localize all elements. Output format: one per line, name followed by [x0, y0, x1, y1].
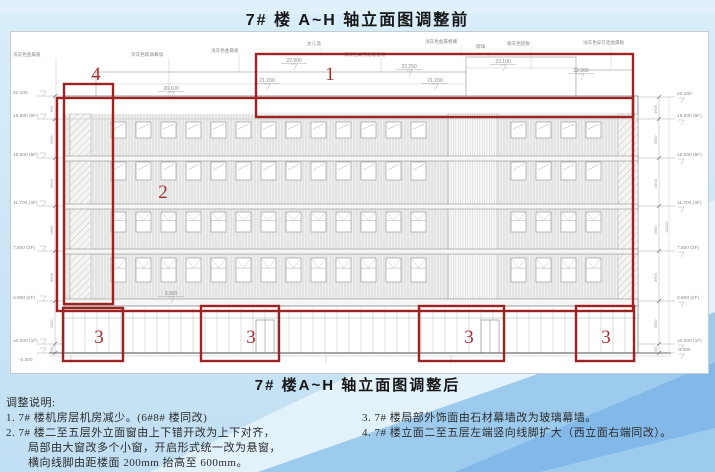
material-label: 银灰色铝板 [507, 40, 530, 47]
material-label: 浅灰色穿孔铝金属板 [583, 39, 625, 46]
window [161, 122, 176, 138]
dim-right: 3900 [653, 319, 658, 329]
window [286, 162, 301, 180]
window [186, 258, 201, 282]
right-dimension-column: 23.10019.500 (6F)15.600 (5F)11.700 (4F)7… [638, 91, 702, 359]
window [586, 212, 601, 232]
floor-slab [64, 249, 638, 254]
elevation-label-right: -0.300 [677, 347, 691, 353]
window [136, 122, 151, 138]
window [561, 162, 576, 180]
elevation-label-right: 11.700 (4F) [677, 200, 702, 206]
dim-right: 3600 [653, 104, 658, 114]
adjustment-notes: 调整说明: 1. 7# 楼机房层机房减少。(6#8# 楼同改)2. 7# 楼二至… [6, 396, 711, 411]
notes-right-column: 3. 7# 楼局部外饰面由石材幕墙改为玻璃幕墙。4. 7# 楼立面二至五层左端竖… [362, 411, 714, 441]
dim-right: 3900 [653, 135, 658, 145]
window [336, 212, 351, 232]
window [211, 162, 226, 180]
window [186, 162, 201, 180]
window [511, 212, 526, 232]
elevation-label-right: 19.500 (6F) [677, 113, 702, 119]
callout-label-2: 2 [158, 182, 168, 203]
material-label: 浅灰色金属格栅 [425, 38, 458, 45]
window [511, 162, 526, 180]
elevation-label-right: 23.100 [677, 91, 692, 97]
elevation-label-left: 20.100 [13, 90, 28, 96]
elevation-label-left: 7.800 (3F) [13, 245, 36, 251]
window [261, 162, 276, 180]
facade-elevation-label: 20.100 [163, 86, 179, 92]
window [311, 122, 326, 138]
window [336, 162, 351, 180]
window [311, 258, 326, 282]
elevation-label-right: 7.800 (3F) [677, 245, 700, 251]
elevation-label-right: 15.600 (5F) [677, 152, 702, 158]
note-line: 3. 7# 楼局部外饰面由石材幕墙改为玻璃幕墙。 [362, 411, 714, 426]
window [586, 122, 601, 138]
note-line: 4. 7# 楼立面二至五层左端竖向线脚扩大（西立面右端同改）。 [362, 426, 714, 441]
window [311, 162, 326, 180]
material-label: 玻璃 [476, 43, 486, 50]
window [261, 258, 276, 282]
window [286, 122, 301, 138]
window [336, 122, 351, 138]
dim-left: 3900 [49, 178, 54, 188]
window [186, 122, 201, 138]
note-line: 1. 7# 楼机房层机房减少。(6#8# 楼同改) [6, 411, 358, 426]
floor-slab [64, 299, 638, 306]
note-line: 2. 7# 楼二至五层外立面窗由上下错开改为上下对齐， [6, 426, 358, 441]
notes-heading: 调整说明: [6, 396, 711, 411]
elevation-label-left: 3.900 (2F) [13, 295, 36, 301]
roof-elevation-label: 22.250 [401, 64, 417, 70]
window [236, 258, 251, 282]
dim-right: 300 [653, 346, 658, 353]
window [511, 122, 526, 138]
material-label: 浅灰色金属板 [211, 47, 239, 54]
window [211, 212, 226, 232]
dim-right: 3900 [653, 225, 658, 235]
window [411, 122, 426, 138]
callout-label-3b: 3 [246, 327, 256, 348]
window [136, 162, 151, 180]
elevation-label-left: 11.700 (4F) [13, 200, 38, 206]
window [161, 162, 176, 180]
window [261, 122, 276, 138]
dim-left: 3900 [49, 319, 54, 329]
dim-total-right: 20100 [664, 221, 669, 233]
floor-slab [64, 204, 638, 209]
dim-left: 300 [49, 346, 54, 353]
elevation-label-left: ±0.000 (1F) [13, 338, 38, 344]
elevation-label-right: 3.900 (2F) [677, 295, 700, 301]
elevation-drawing: 22.90021.20022.25021.20023.10022.30020.1… [11, 32, 708, 373]
right-corner-pier [618, 114, 638, 306]
window [236, 212, 251, 232]
window [561, 122, 576, 138]
elevation-label-left: 19.500 (6F) [13, 113, 38, 119]
window [386, 212, 401, 232]
window [561, 258, 576, 282]
dim-left: 600 [49, 105, 54, 112]
window [286, 258, 301, 282]
window [161, 258, 176, 282]
window [561, 212, 576, 232]
roof-elevation-label: 23.100 [495, 59, 511, 65]
notes-left-column: 1. 7# 楼机房层机房减少。(6#8# 楼同改)2. 7# 楼二至五层外立面窗… [6, 411, 358, 471]
facade-elevation-label: 3.900 [165, 291, 178, 297]
window [361, 162, 376, 180]
roof-elevation-label: 22.300 [573, 68, 589, 74]
window [236, 162, 251, 180]
callout-label-3d: 3 [601, 327, 611, 348]
roof-elevation-label: 22.900 [286, 58, 302, 64]
window [286, 212, 301, 232]
roof-elevation-label: 21.200 [427, 78, 443, 84]
material-label: 深灰色玻璃幕墙 [131, 51, 164, 58]
window [411, 162, 426, 180]
roof-elevation-label: 21.200 [259, 78, 275, 84]
note-line: 横向线脚由距楼面 200mm 抬高至 600mm。 [6, 456, 358, 471]
window [161, 212, 176, 232]
note-line: 局部由大窗改多个小窗，开启形式统一改为悬窗， [6, 441, 358, 456]
callout-label-3a: 3 [94, 327, 104, 348]
elevation-label-left: -0.300 [19, 357, 33, 363]
window [411, 258, 426, 282]
window [211, 122, 226, 138]
window [536, 122, 551, 138]
title-after: 7# 楼A~H 轴立面图调整后 [0, 374, 715, 395]
window [136, 258, 151, 282]
window [386, 122, 401, 138]
window [361, 258, 376, 282]
elevation-label-left: 15.600 (5F) [13, 152, 38, 158]
dim-left: 3900 [49, 272, 54, 282]
left-corner-pier [70, 114, 91, 306]
window [261, 212, 276, 232]
title-before: 7# 楼 A~H 轴立面图调整前 [0, 6, 715, 30]
dim-left: 3900 [49, 135, 54, 145]
floor-slab [64, 156, 638, 161]
window [411, 212, 426, 232]
callout-label-3c: 3 [464, 327, 474, 348]
elevation-panel: 22.90021.20022.25021.20023.10022.30020.1… [10, 31, 709, 374]
window [511, 258, 526, 282]
window [536, 258, 551, 282]
callout-label-4: 4 [91, 64, 101, 85]
window [536, 162, 551, 180]
window [536, 212, 551, 232]
window [586, 162, 601, 180]
window [586, 258, 601, 282]
dim-right: 3900 [653, 178, 658, 188]
window [311, 212, 326, 232]
window [211, 258, 226, 282]
window [136, 212, 151, 232]
window [336, 258, 351, 282]
window [361, 122, 376, 138]
window [361, 212, 376, 232]
dim-right: 3900 [653, 272, 658, 282]
window [236, 122, 251, 138]
dim-left: 3900 [49, 225, 54, 235]
callout-label-1: 1 [325, 64, 335, 85]
material-label: 浅灰色金属板 [13, 51, 41, 58]
storefront [49, 306, 671, 364]
window [386, 162, 401, 180]
elevation-label-right: ±0.000 (1F) [677, 338, 702, 344]
window [386, 258, 401, 282]
material-label: 女儿墙 [307, 40, 321, 47]
window [186, 212, 201, 232]
